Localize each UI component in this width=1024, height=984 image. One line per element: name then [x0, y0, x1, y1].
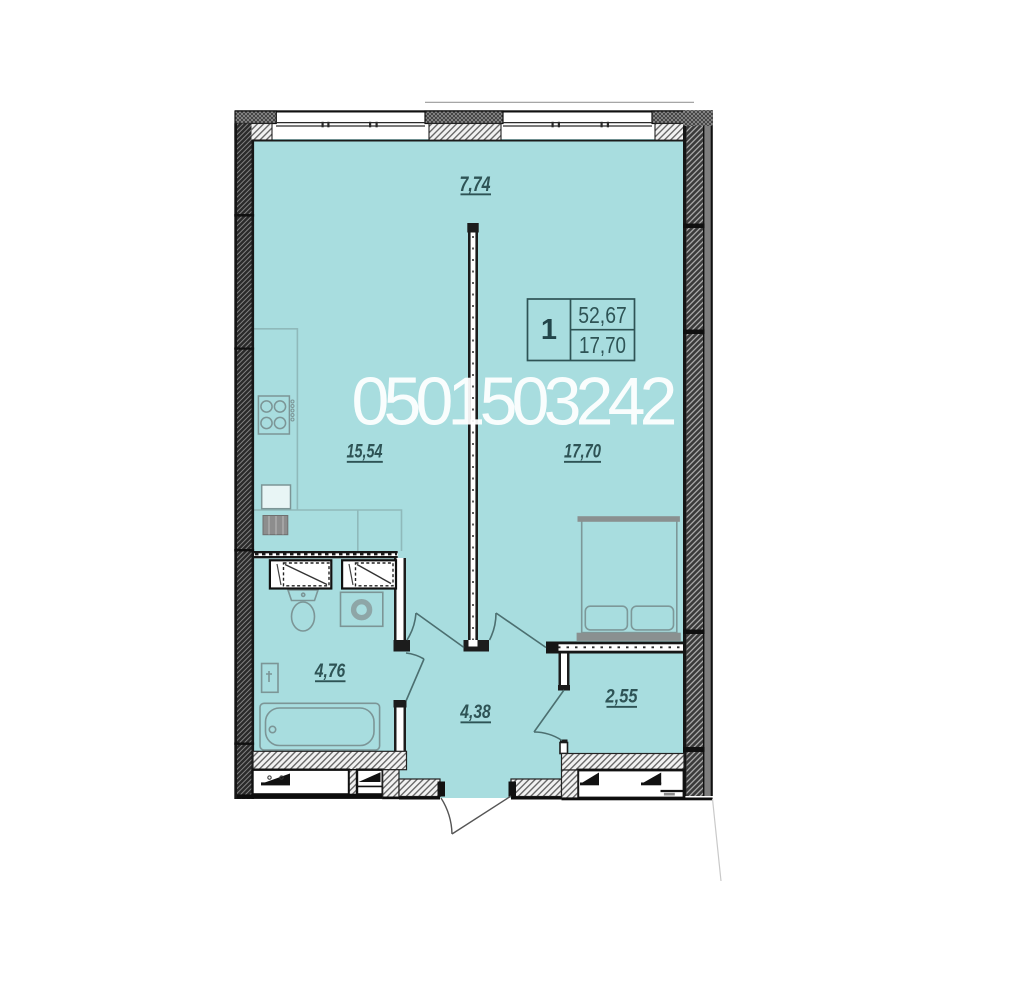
svg-text:0501503242: 0501503242 [352, 364, 678, 440]
svg-text:1: 1 [541, 314, 557, 346]
svg-text:52,67: 52,67 [578, 302, 627, 328]
svg-text:4,76: 4,76 [314, 661, 346, 682]
svg-text:17,70: 17,70 [564, 442, 601, 463]
svg-text:2,55: 2,55 [605, 687, 638, 708]
svg-text:17,70: 17,70 [579, 332, 626, 358]
svg-text:15,54: 15,54 [347, 442, 383, 463]
svg-text:4,38: 4,38 [459, 702, 491, 723]
svg-text:7,74: 7,74 [460, 173, 491, 196]
